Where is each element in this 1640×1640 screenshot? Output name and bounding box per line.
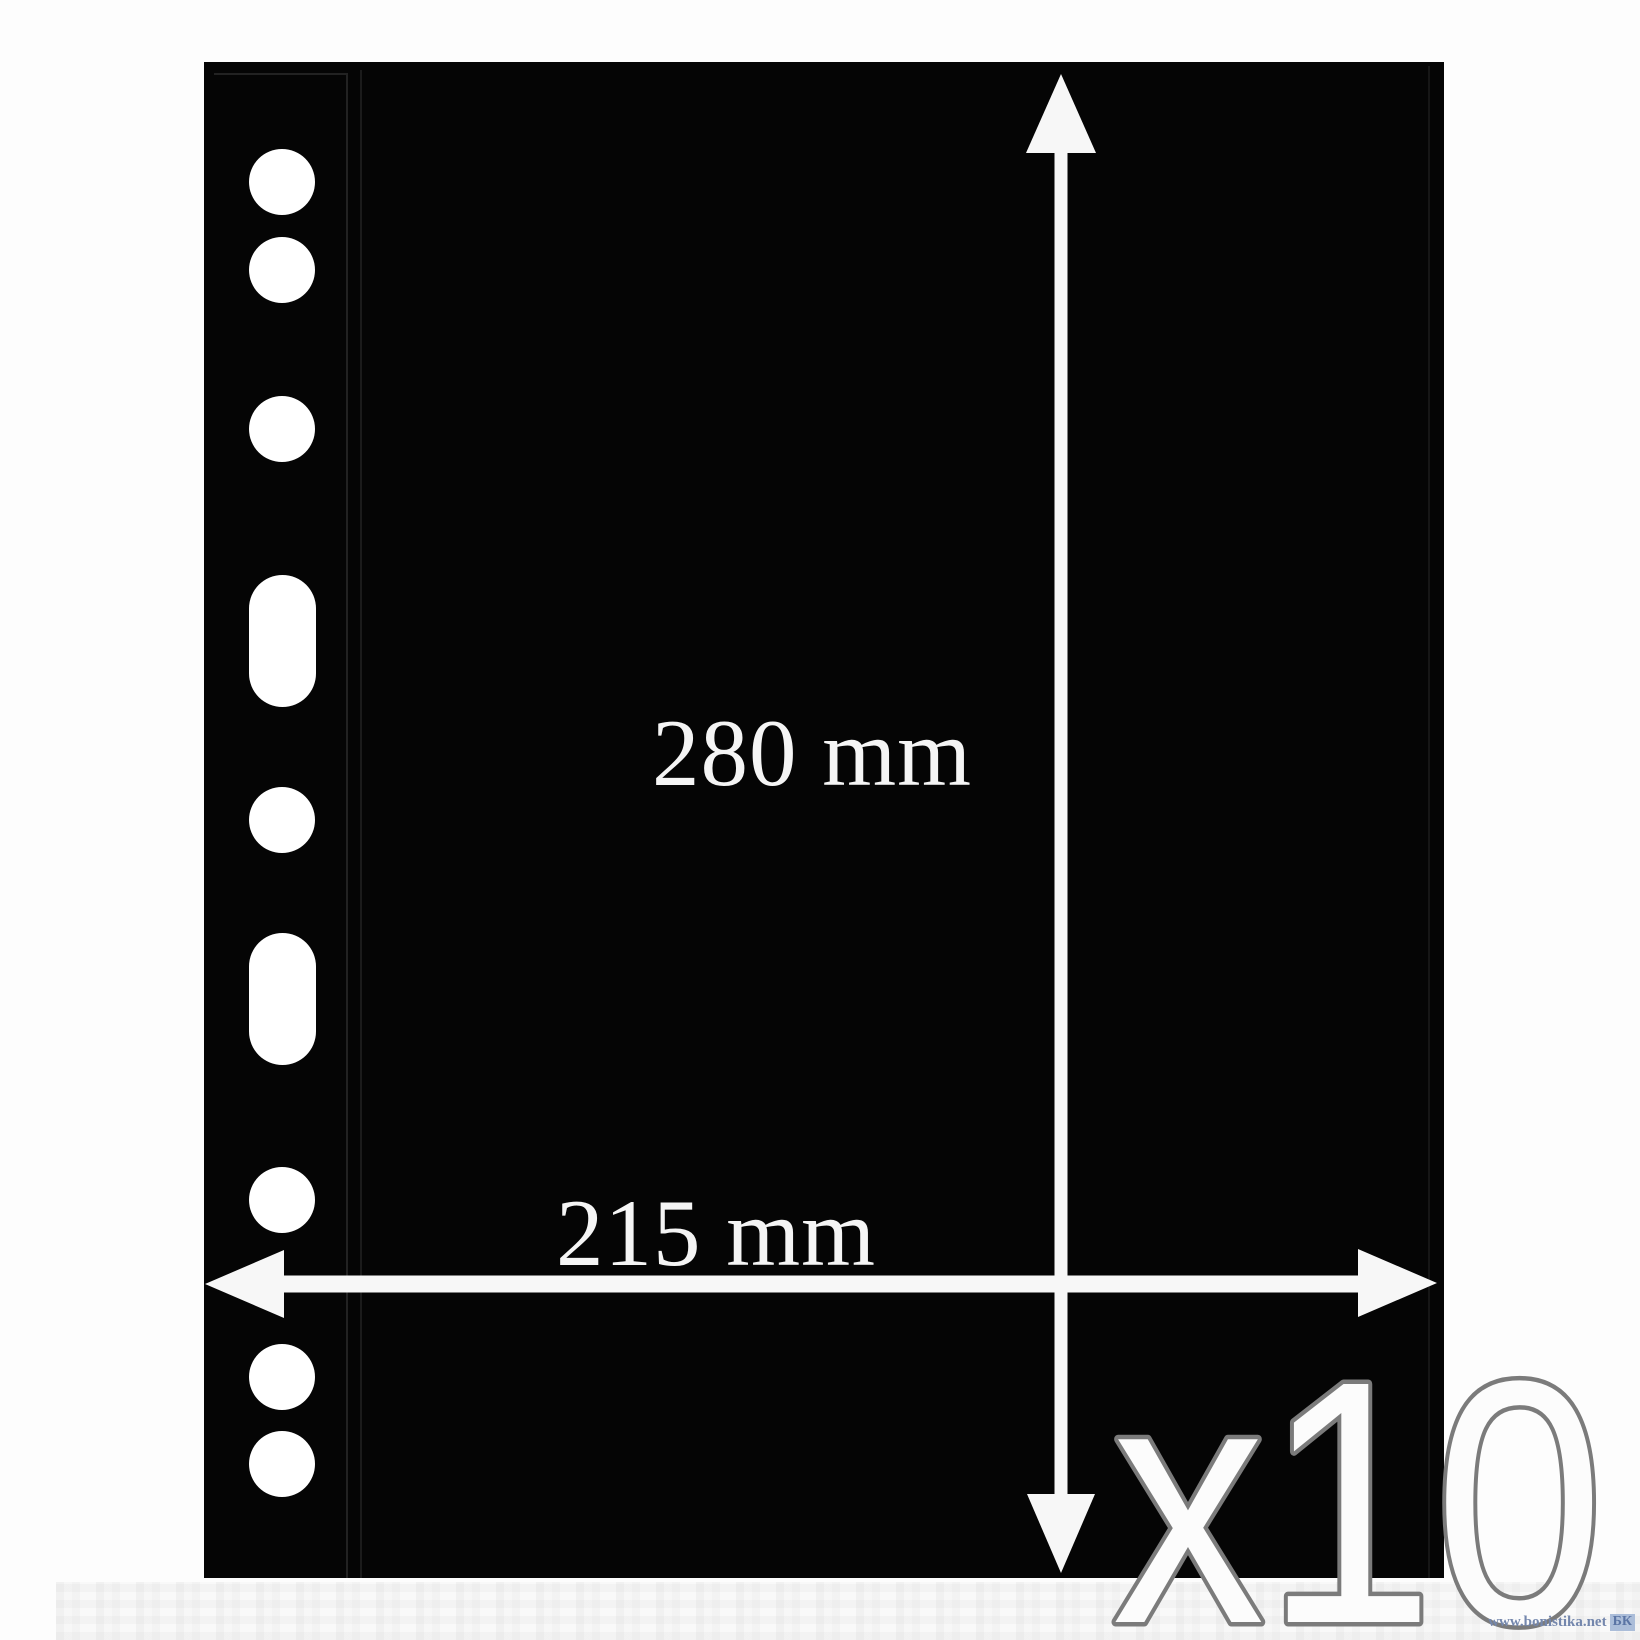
height-dimension-label: 280 mm — [642, 706, 982, 801]
punch-hole-circle — [249, 1431, 315, 1497]
punch-hole-circle — [249, 787, 315, 853]
punch-hole-circle — [249, 149, 315, 215]
pocket-right-seam — [1428, 66, 1430, 1578]
watermark-badge: БК — [1610, 1614, 1635, 1631]
pocket-left-seam — [360, 70, 362, 1578]
punch-hole-circle — [249, 396, 315, 462]
width-dimension-label: 215 mm — [546, 1186, 886, 1281]
punch-hole-circle — [249, 1344, 315, 1410]
binder-sheet — [204, 62, 1444, 1578]
product-image-canvas: 280 mm 215 mm x10 www.bonistika.net БК — [0, 0, 1640, 1640]
strip-inner-outline-right — [346, 73, 348, 1578]
punch-hole-circle — [249, 1167, 315, 1233]
punch-hole-slot — [249, 575, 316, 707]
watermark-text: www.bonistika.net — [1488, 1615, 1606, 1630]
watermark: www.bonistika.net БК — [1488, 1614, 1635, 1631]
punch-hole-circle — [249, 237, 315, 303]
strip-inner-outline-top — [214, 73, 348, 75]
jpeg-noise-band — [56, 1582, 1640, 1640]
punch-hole-slot — [249, 933, 316, 1065]
